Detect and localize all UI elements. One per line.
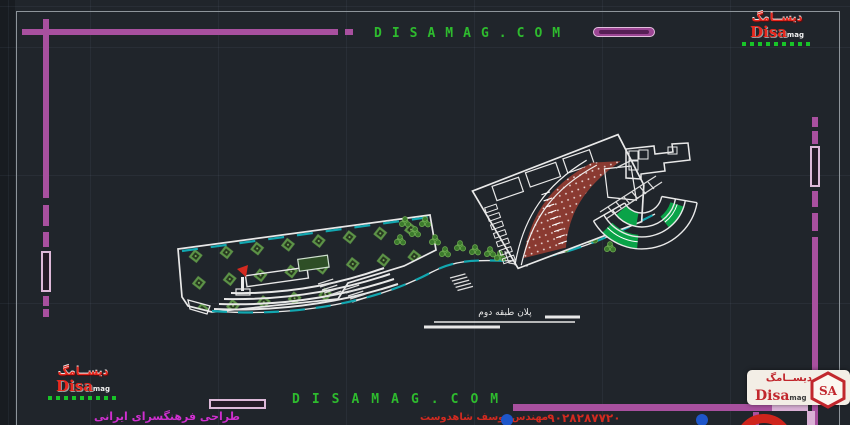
logo-name: Disa bbox=[755, 388, 789, 404]
footer-phone: ۰۹۰۲۸۲۸۷۷۲۰ bbox=[540, 411, 621, 425]
cube-monogram: SA bbox=[819, 384, 838, 398]
footer-credit: مهندس یوسف شاهدوست bbox=[420, 412, 548, 423]
sa-cube-logo: SA bbox=[806, 371, 850, 409]
logo-suffix: mag bbox=[789, 394, 806, 402]
stair-flight bbox=[450, 273, 473, 292]
plan-title: پلان طبقه دوم bbox=[478, 308, 532, 318]
telegram-icon bbox=[696, 414, 708, 425]
cad-sheet: DISAMAG.COM DISAMAG.COM دیســامگ Disamag… bbox=[0, 0, 850, 425]
footer-project-title: طراحی فرهنگسرای ایرانی bbox=[92, 410, 242, 423]
plan-title-block: پلان طبقه دوم bbox=[424, 308, 580, 327]
floor-plan-canvas: پلان طبقه دوم bbox=[0, 0, 850, 425]
telegram-icon bbox=[501, 414, 513, 425]
